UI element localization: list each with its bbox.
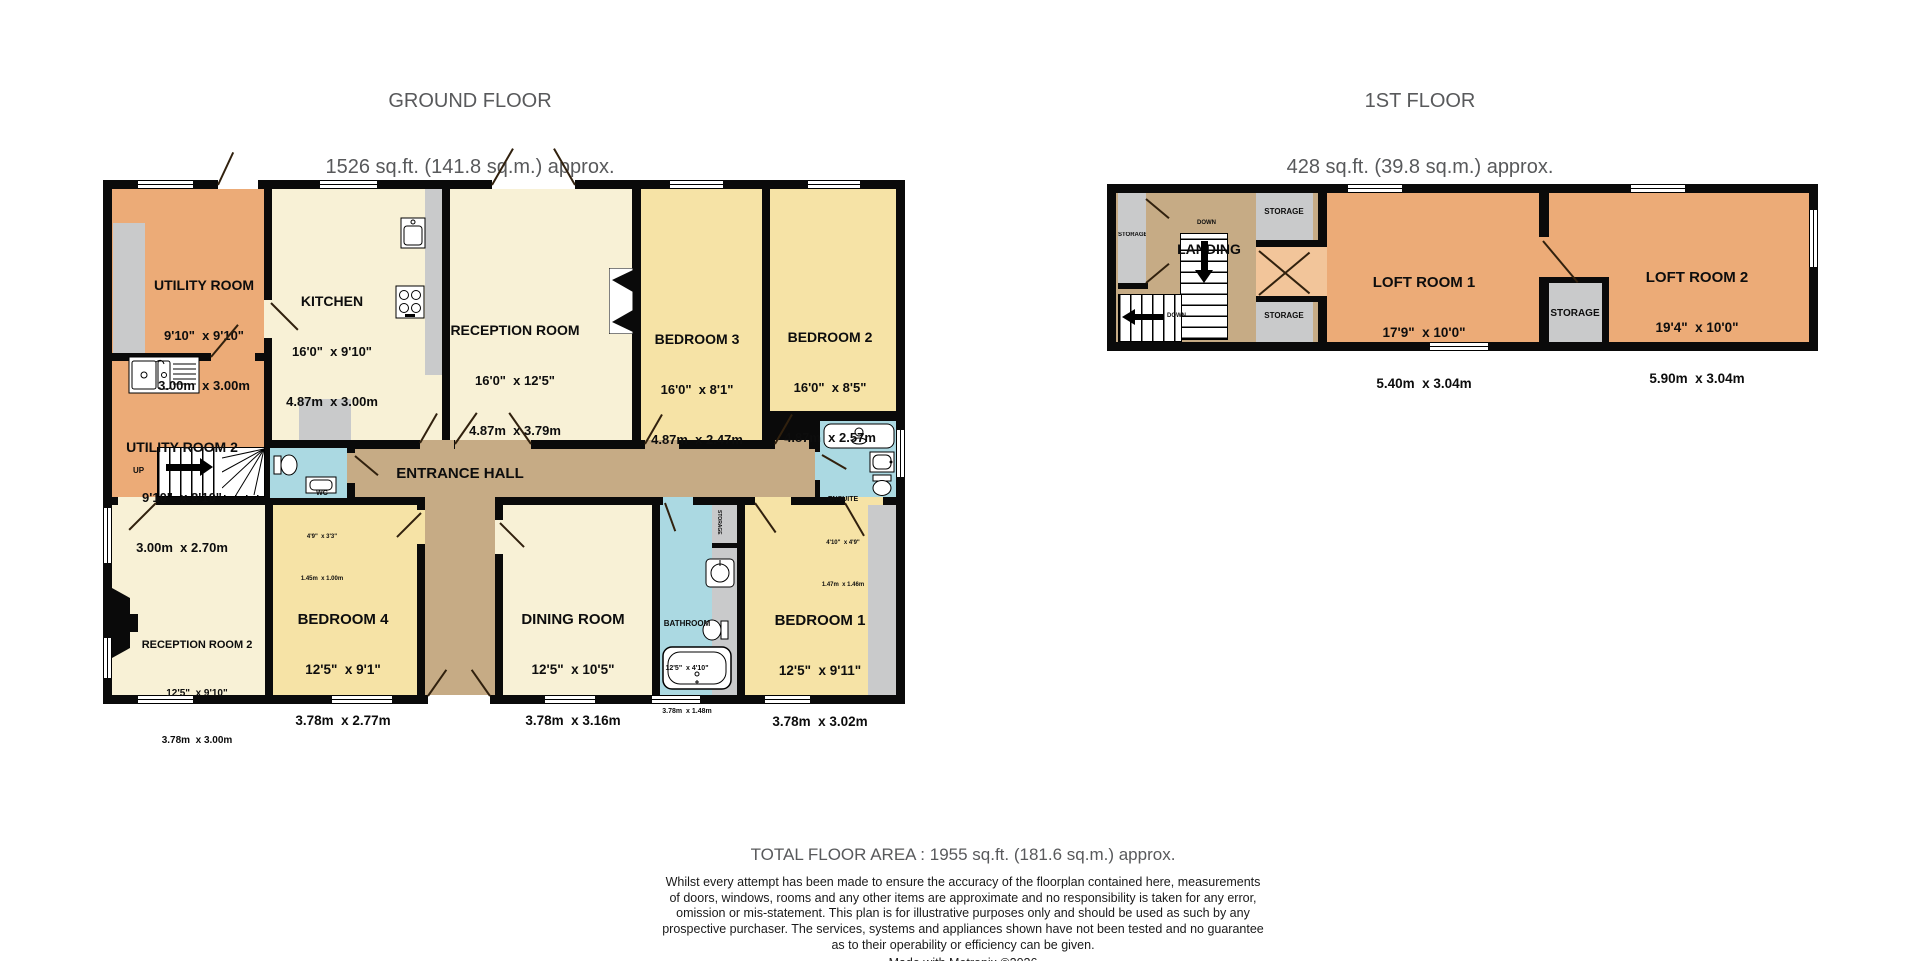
room-name: DINING ROOM: [521, 612, 624, 627]
door-opening: [347, 453, 355, 483]
wall-segment: [1602, 283, 1609, 342]
room-name: BEDROOM 4: [295, 612, 390, 627]
room-storage-bottom: [1256, 302, 1313, 342]
room-label-storage-bottom: STORAGE: [1264, 311, 1303, 320]
room-dims-imperial: 4'9" x 3'3": [301, 534, 343, 541]
disclaimer-line: prospective purchaser. The services, sys…: [583, 922, 1343, 938]
door-opening: [492, 180, 575, 189]
room-label-utility-room: UTILITY ROOM 9'10" x 9'10" 3.00m x 3.00m: [154, 242, 254, 429]
door-opening: [420, 440, 454, 449]
sink-icon: [400, 217, 426, 249]
door-opening: [264, 300, 272, 338]
total-floor-area: TOTAL FLOOR AREA : 1955 sq.ft. (181.6 sq…: [583, 845, 1343, 865]
up-arrow: [166, 464, 200, 471]
room-dims-metric: 3.78m x 1.48m: [662, 708, 711, 716]
down-arrow-head: [1195, 270, 1213, 283]
room-dims-metric: 3.00m x 2.70m: [126, 541, 238, 555]
room-name: BEDROOM 2: [784, 330, 876, 345]
ground-floor-title-text: GROUND FLOOR: [325, 90, 614, 112]
window: [1348, 184, 1402, 193]
room-dims-metric: 3.78m x 2.77m: [295, 714, 390, 729]
toilet-icon: [273, 452, 299, 478]
left-arrow-head: [1122, 309, 1135, 325]
room-label-bedroom-1: BEDROOM 1 12'5" x 9'11" 3.78m x 3.02m: [772, 577, 867, 765]
fireplace-icon: [609, 268, 633, 334]
room-name: BEDROOM 3: [651, 332, 743, 347]
down-arrow: [1201, 241, 1208, 271]
room-name: UTILITY ROOM: [154, 278, 254, 293]
room-label-loft-room-2: LOFT ROOM 2 19'4" x 10'0" 5.90m x 3.04m: [1646, 234, 1749, 422]
room-dims-metric: 5.40m x 3.04m: [1373, 377, 1476, 392]
disclaimer-line: Whilst every attempt has been made to en…: [583, 875, 1343, 891]
room-label-bedroom-4: BEDROOM 4 12'5" x 9'1" 3.78m x 2.77m: [295, 576, 390, 764]
room-label-bathroom: BATHROOM 12'5" x 4'10" 3.78m x 1.48m: [662, 584, 711, 752]
floorplan-page: GROUND FLOOR 1526 sq.ft. (141.8 sq.m.) a…: [0, 0, 1920, 961]
room-dims-imperial: 12'5" x 9'11": [772, 664, 867, 679]
room-name: BEDROOM 1: [772, 613, 867, 628]
first-floor-title-text: 1ST FLOOR: [1287, 90, 1554, 112]
room-label-entrance-hall: ENTRANCE HALL: [396, 465, 524, 482]
up-arrow-head: [200, 458, 213, 476]
window: [670, 180, 723, 189]
entrance-door-opening: [428, 695, 490, 704]
room-storage-top: [1256, 193, 1313, 240]
room-label-bedroom-2: BEDROOM 2 16'0" x 8'5" 4.87m x 2.57m: [784, 294, 876, 481]
chimney-icon: [112, 588, 138, 658]
room-label-reception-room: RECEPTION ROOM 16'0" x 12'5" 4.87m x 3.7…: [450, 287, 579, 474]
room-name: WC: [301, 490, 343, 498]
room-dims-imperial: 12'5" x 9'10": [142, 688, 253, 699]
window: [1809, 210, 1818, 267]
stairs-down-label: DOWN: [1197, 220, 1216, 226]
room-dims-imperial: 12'5" x 9'1": [295, 663, 390, 678]
window: [1631, 184, 1685, 193]
room-label-storage-left: STORAGE: [1118, 232, 1146, 238]
room-name: UTILITY ROOM 2: [126, 440, 238, 455]
room-name: LOFT ROOM 1: [1373, 275, 1476, 290]
kitchen-counter: [425, 189, 442, 375]
room-dims-imperial: 9'10" x 8'10": [126, 491, 238, 505]
room-name: LOFT ROOM 2: [1646, 270, 1749, 285]
room-dims-metric: 4.87m x 2.47m: [651, 433, 743, 447]
room-name: KITCHEN: [286, 294, 378, 309]
window: [103, 508, 112, 563]
room-dims-imperial: 17'9" x 10'0": [1373, 326, 1476, 341]
room-dims-metric: 4.87m x 3.00m: [286, 395, 378, 409]
room-dims-metric: 4.87m x 3.79m: [450, 424, 579, 438]
room-label-storage-top: STORAGE: [1264, 207, 1303, 216]
room-dims-imperial: 12'5" x 4'10": [662, 665, 711, 673]
room-dims-imperial: 16'0" x 8'5": [784, 381, 876, 395]
room-dims-imperial: 19'4" x 10'0": [1646, 321, 1749, 336]
entrance-hall-corridor: [425, 497, 495, 695]
room-dims-imperial: 9'10" x 9'10": [154, 329, 254, 343]
disclaimer-line: of doors, windows, rooms and any other i…: [583, 891, 1343, 907]
bedroom-1-recess: [868, 505, 896, 695]
room-label-loft-room-1: LOFT ROOM 1 17'9" x 10'0" 5.40m x 3.04m: [1373, 239, 1476, 427]
room-name: RECEPTION ROOM 2: [142, 640, 253, 652]
disclaimer-line: omission or mis-statement. This plan is …: [583, 906, 1343, 922]
room-dims-metric: 5.90m x 3.04m: [1646, 372, 1749, 387]
wall-segment: [1118, 283, 1148, 289]
metropix-credit: Made with Metropix ©2026: [583, 956, 1343, 961]
room-name: RECEPTION ROOM: [450, 323, 579, 338]
disclaimer-line: as to their operability or efficiency ca…: [583, 938, 1343, 954]
window: [320, 180, 377, 189]
window: [103, 638, 112, 678]
door-opening: [218, 180, 258, 189]
wall-segment: [1256, 240, 1320, 247]
room-dims-metric: 3.78m x 3.00m: [142, 735, 253, 746]
room-label-bedroom-3: BEDROOM 3 16'0" x 8'1" 4.87m x 2.47m: [651, 296, 743, 483]
room-dims-metric: 3.78m x 3.16m: [521, 714, 624, 729]
room-dims-metric: 4.87m x 2.57m: [784, 431, 876, 445]
room-dims-metric: 3.00m x 3.00m: [154, 379, 254, 393]
first-floor-subtitle-text: 428 sq.ft. (39.8 sq.m.) approx.: [1287, 156, 1554, 178]
room-label-reception-room-2: RECEPTION ROOM 2 12'5" x 9'10" 3.78m x 3…: [142, 604, 253, 782]
room-label-dining-room: DINING ROOM 12'5" x 10'5" 3.78m x 3.16m: [521, 576, 624, 764]
room-dims-imperial: 16'0" x 9'10": [286, 345, 378, 359]
room-dims-imperial: 16'0" x 12'5": [450, 374, 579, 388]
room-dims-metric: 3.78m x 3.02m: [772, 715, 867, 730]
footer: TOTAL FLOOR AREA : 1955 sq.ft. (181.6 sq…: [583, 845, 1343, 961]
room-label-utility-room-2: UTILITY ROOM 2 9'10" x 8'10" 3.00m x 2.7…: [126, 404, 238, 591]
first-floor-plan: DOWN LANDING DOWN STORAGE STORAGE STORAG…: [1107, 184, 1818, 351]
door-opening: [755, 497, 791, 505]
room-name: ENSUITE: [822, 496, 864, 504]
utility-room-recess: [113, 223, 145, 353]
hob-icon: [395, 285, 425, 319]
left-arrow: [1134, 314, 1164, 320]
room-name: LANDING: [1177, 242, 1241, 257]
room-dims-imperial: 12'5" x 10'5": [521, 663, 624, 678]
room-dims-imperial: 4'10" x 4'9": [822, 540, 864, 547]
ground-floor-subtitle-text: 1526 sq.ft. (141.8 sq.m.) approx.: [325, 156, 614, 178]
room-label-storage-mid: STORAGE: [1550, 308, 1599, 319]
stairs-down-label: DOWN: [1167, 313, 1186, 319]
window: [808, 180, 860, 189]
room-dims-imperial: 16'0" x 8'1": [651, 383, 743, 397]
ground-floor-plan: UP: [103, 180, 905, 704]
window: [896, 430, 905, 477]
room-label-kitchen: KITCHEN 16'0" x 9'10" 4.87m x 3.00m: [286, 258, 378, 445]
window: [138, 180, 193, 189]
stairs-up-label: UP: [133, 466, 144, 475]
room-storage-left: [1118, 193, 1146, 283]
room-label-storage-small: STORAGE: [716, 510, 722, 535]
room-name: BATHROOM: [662, 620, 711, 629]
door-opening: [663, 497, 693, 505]
